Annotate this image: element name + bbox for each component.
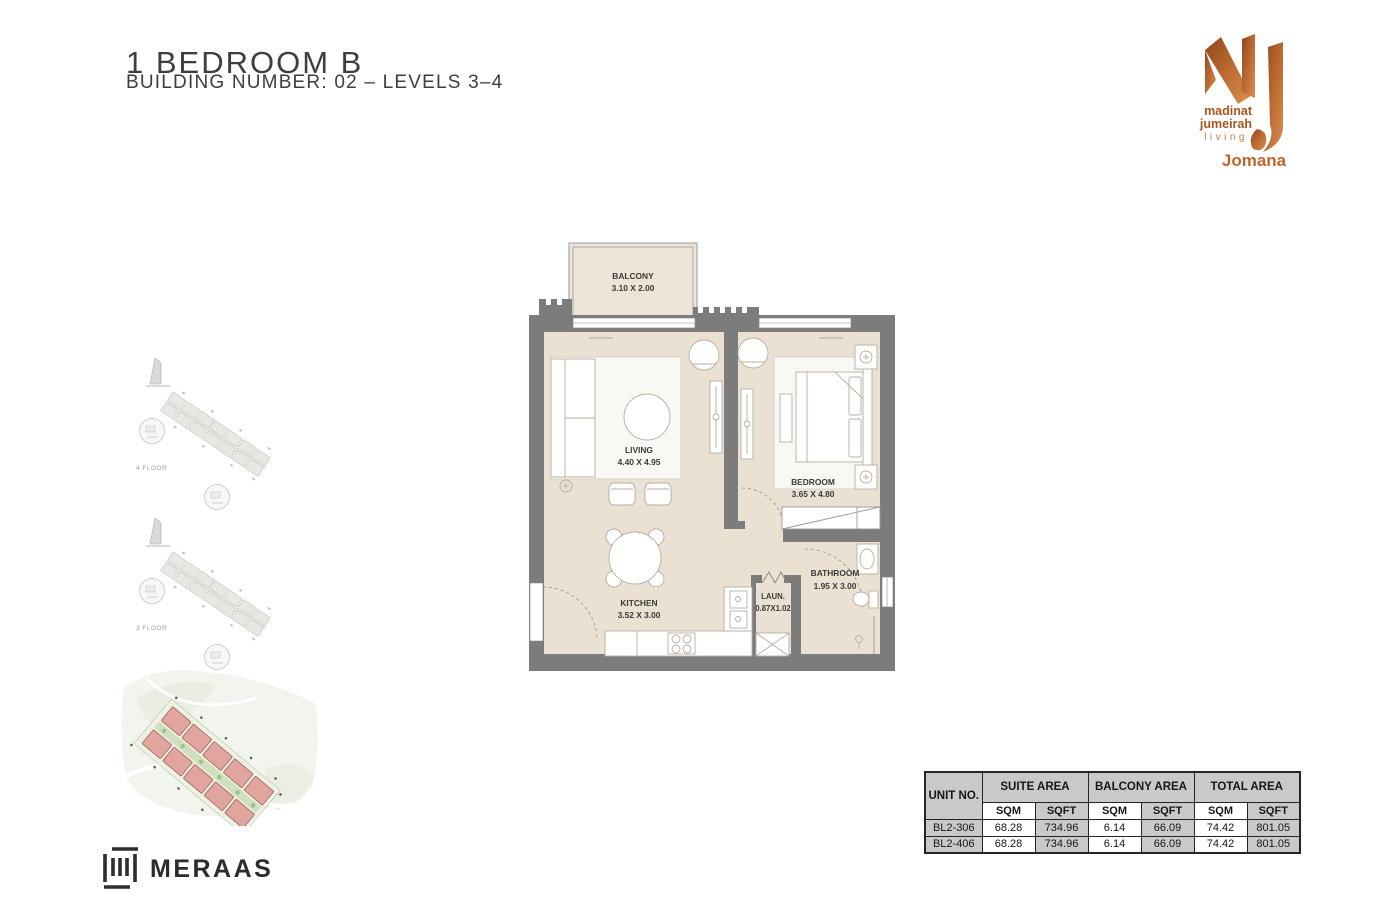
value-cell: 68.28 <box>982 836 1035 853</box>
value-cell: 734.96 <box>1035 819 1088 836</box>
mj-logo: madinat jumeirah living Jomana <box>1188 26 1318 176</box>
value-cell: 74.42 <box>1194 819 1247 836</box>
room-label-living-name: LIVING <box>625 445 653 455</box>
value-cell: 68.28 <box>982 819 1035 836</box>
unit-no-header: UNIT NO. <box>925 772 982 819</box>
sub-header-sqft: SQFT <box>1141 802 1194 819</box>
keyplan-label: 3 FLOOR <box>136 625 167 632</box>
burj-icon <box>146 518 170 546</box>
balcony-area-header: BALCONY AREA <box>1088 772 1194 802</box>
keyplan-label: 4 FLOOR <box>136 465 167 472</box>
page-subtitle: BUILDING NUMBER: 02 – LEVELS 3–4 <box>126 72 503 94</box>
value-cell: 801.05 <box>1247 836 1300 853</box>
value-cell: 734.96 <box>1035 836 1088 853</box>
room-label-balcony-name: BALCONY <box>612 271 654 281</box>
sub-header-sqft: SQFT <box>1035 802 1088 819</box>
developer-name: MERAAS <box>150 855 273 883</box>
unit-cell: BL2-306 <box>925 819 982 836</box>
project-name: Jomana <box>1222 151 1287 170</box>
keyplan-level-4: 4 FLOOR <box>128 350 313 518</box>
building-strip <box>157 545 277 643</box>
value-cell: 801.05 <box>1247 819 1300 836</box>
room-label-laundry-name: LAUN. <box>761 592 785 601</box>
room-label-laundry-dims: 0.87X1.02 <box>755 604 791 613</box>
suite-area-header: SUITE AREA <box>982 772 1088 802</box>
value-cell: 66.09 <box>1141 819 1194 836</box>
value-cell: 6.14 <box>1088 836 1141 853</box>
brand-line-living: living <box>1204 132 1248 143</box>
brochure-page: 1 BEDROOM B BUILDING NUMBER: 02 – LEVELS… <box>0 0 1392 900</box>
room-label-balcony-dims: 3.10 X 2.00 <box>612 283 655 293</box>
value-cell: 74.42 <box>1194 836 1247 853</box>
total-area-header: TOTAL AREA <box>1194 772 1300 802</box>
room-label-kitchen-dims: 3.52 X 3.00 <box>618 610 661 620</box>
meraas-icon <box>104 849 138 887</box>
area-table: UNIT NO. SUITE AREA BALCONY AREA TOTAL A… <box>924 771 1301 854</box>
room-label-bedroom-name: BEDROOM <box>791 477 835 487</box>
value-cell: 66.09 <box>1141 836 1194 853</box>
meraas-logo: MERAAS <box>100 845 320 891</box>
brand-line-jumeirah: jumeirah <box>1199 117 1252 131</box>
room-label-bedroom-dims: 3.65 X 4.80 <box>792 489 835 499</box>
room-label-bathroom-dims: 1.95 X 3.00 <box>814 581 857 591</box>
keyplan-level-3: 3 FLOOR <box>128 510 313 678</box>
room-label-bathroom-name: BATHROOM <box>811 568 860 578</box>
sub-header-sqm: SQM <box>1088 802 1141 819</box>
building-strip <box>157 385 277 483</box>
floor-plan: BALCONY 3.10 X 2.00 LIVING 4.40 X 4.95 B… <box>527 231 903 677</box>
room-label-kitchen-name: KITCHEN <box>620 598 657 608</box>
table-row: BL2-406 68.28 734.96 6.14 66.09 74.42 80… <box>925 836 1300 853</box>
unit-cell: BL2-406 <box>925 836 982 853</box>
burj-icon <box>146 358 170 386</box>
room-label-living-dims: 4.40 X 4.95 <box>618 457 661 467</box>
sub-header-sqft: SQFT <box>1247 802 1300 819</box>
sub-header-sqm: SQM <box>982 802 1035 819</box>
sub-header-sqm: SQM <box>1194 802 1247 819</box>
brand-line-madinat: madinat <box>1204 104 1253 118</box>
table-row: BL2-306 68.28 734.96 6.14 66.09 74.42 80… <box>925 819 1300 836</box>
value-cell: 6.14 <box>1088 819 1141 836</box>
site-plan <box>116 658 326 826</box>
